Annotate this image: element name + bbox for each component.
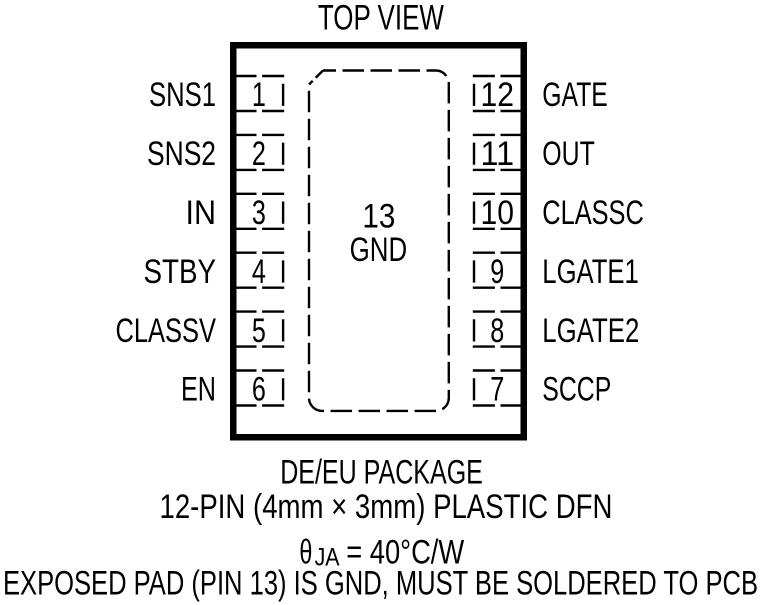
svg-text:8: 8 <box>490 312 504 350</box>
svg-text:6: 6 <box>252 371 266 409</box>
svg-text:3: 3 <box>252 194 266 232</box>
svg-text:12-PIN (4mm × 3mm) PLASTIC DFN: 12-PIN (4mm × 3mm) PLASTIC DFN <box>160 488 613 526</box>
svg-text:7: 7 <box>490 371 504 409</box>
svg-text:11: 11 <box>481 135 515 173</box>
svg-text:GATE: GATE <box>542 76 608 114</box>
svg-text:LGATE1: LGATE1 <box>542 253 639 291</box>
svg-text:4: 4 <box>252 253 266 291</box>
svg-text:9: 9 <box>490 253 504 291</box>
svg-text:CLASSC: CLASSC <box>542 194 644 232</box>
svg-text:LGATE2: LGATE2 <box>542 312 639 350</box>
svg-text:2: 2 <box>252 135 266 173</box>
svg-text:SNS2: SNS2 <box>147 135 216 173</box>
svg-text:EN: EN <box>181 371 216 409</box>
svg-text:OUT: OUT <box>542 135 595 173</box>
svg-text:EXPOSED PAD (PIN 13) IS GND, M: EXPOSED PAD (PIN 13) IS GND, MUST BE SOL… <box>3 565 758 603</box>
svg-text:SCCP: SCCP <box>542 371 611 409</box>
svg-text:STBY: STBY <box>144 253 217 291</box>
svg-text:IN: IN <box>186 194 217 232</box>
svg-text:5: 5 <box>252 312 266 350</box>
svg-text:10: 10 <box>481 194 515 232</box>
svg-text:GND: GND <box>350 231 408 269</box>
svg-text:DE/EU PACKAGE: DE/EU PACKAGE <box>280 453 483 491</box>
svg-text:13: 13 <box>362 198 395 236</box>
svg-text:SNS1: SNS1 <box>149 76 216 114</box>
svg-text:1: 1 <box>252 76 266 114</box>
svg-text:CLASSV: CLASSV <box>116 312 217 350</box>
svg-text:12: 12 <box>481 76 515 114</box>
svg-text:TOP VIEW: TOP VIEW <box>318 0 444 38</box>
